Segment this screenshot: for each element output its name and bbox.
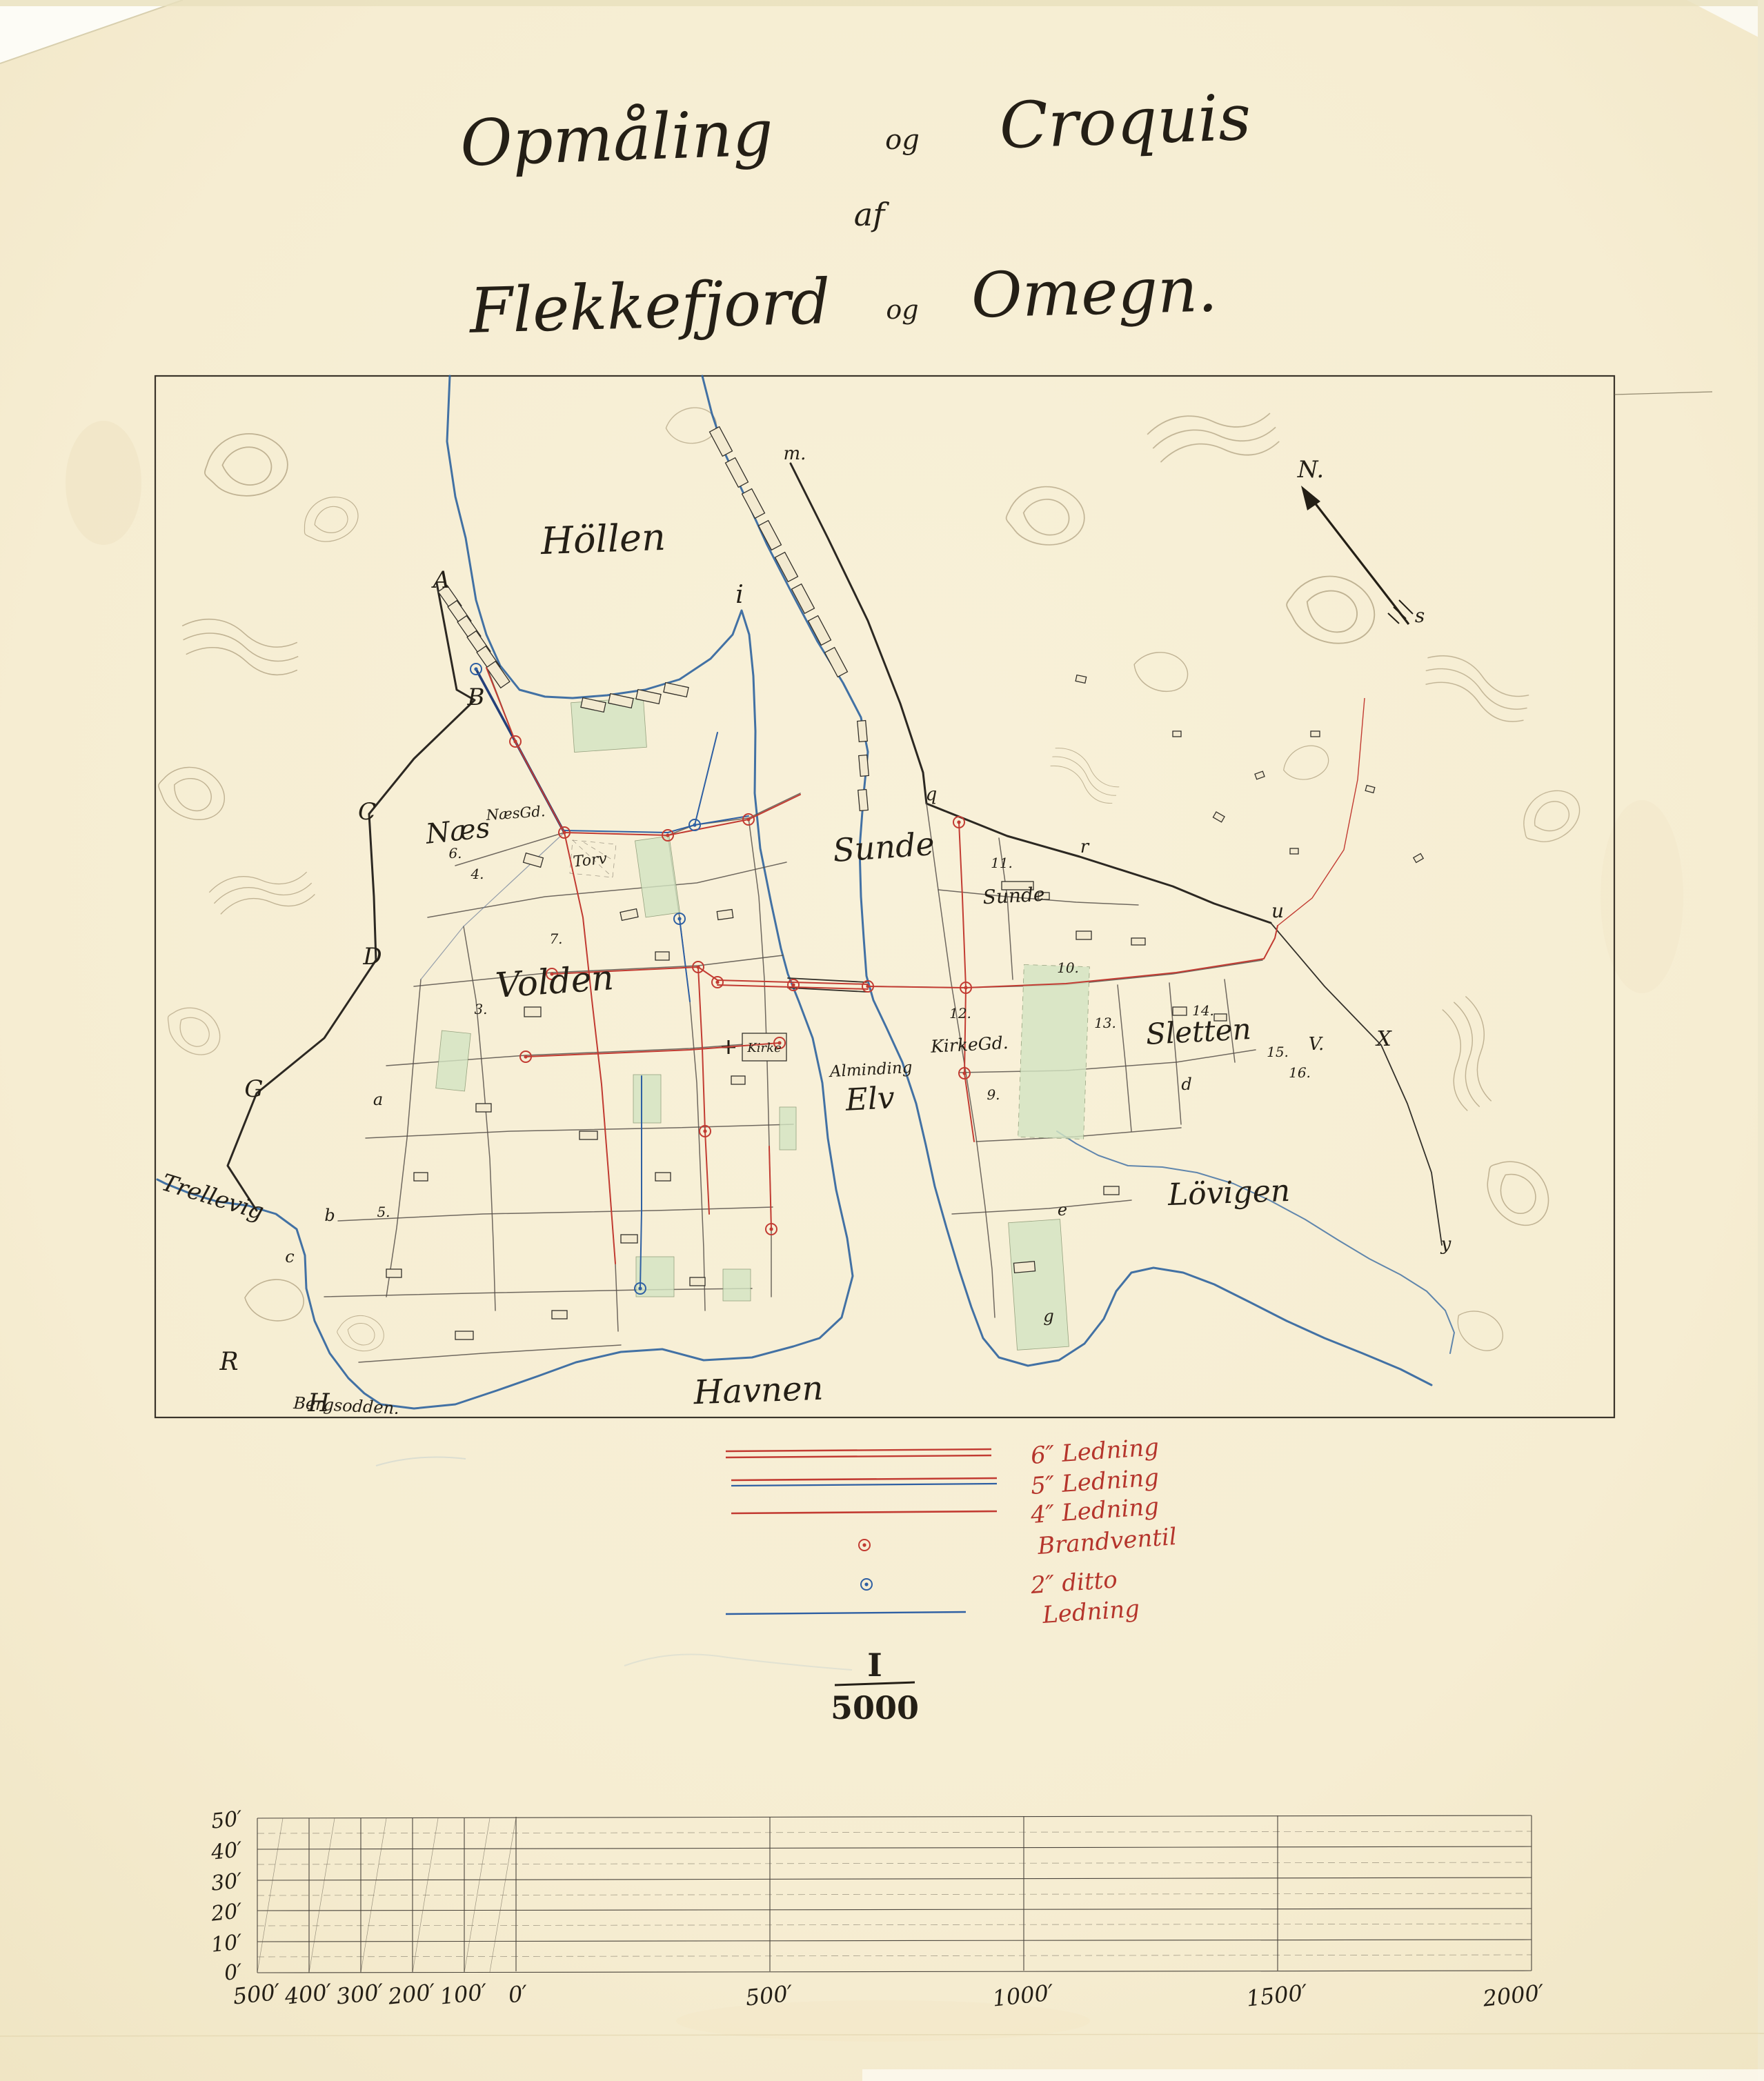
- paper-background: [0, 0, 1764, 2081]
- number-10: 10.: [1057, 959, 1079, 976]
- point-i: i: [735, 581, 744, 609]
- point-V: V.: [1309, 1034, 1325, 1055]
- place-label-kirkegaard: KirkeGd.: [929, 1033, 1009, 1057]
- point-m: m.: [784, 444, 806, 464]
- place-label-sunde-district: Sunde: [831, 825, 935, 869]
- point-y: y: [1440, 1234, 1451, 1255]
- point-D: D: [362, 943, 381, 970]
- lot-d: d: [1181, 1075, 1191, 1094]
- lot-e: e: [1058, 1200, 1067, 1219]
- y-tick-10: 10′: [210, 1930, 244, 1958]
- place-label-lovigen: Lövigen: [1167, 1173, 1291, 1213]
- title-word-opmaling: Opmåling: [459, 96, 774, 181]
- number-12: 12.: [949, 1005, 971, 1022]
- number-7: 7.: [549, 930, 562, 947]
- place-label-volden: Volden: [494, 957, 615, 1006]
- point-C: C: [358, 798, 376, 826]
- place-label-elv: Elv: [844, 1080, 895, 1118]
- point-B: B: [467, 684, 485, 711]
- south-label: s: [1415, 604, 1425, 627]
- number-16: 16.: [1289, 1064, 1311, 1081]
- x-tick-left-200: 200′: [386, 1979, 437, 2010]
- place-label-torv: Torv: [573, 850, 608, 870]
- point-A: A: [431, 566, 450, 594]
- lot-b: b: [324, 1206, 335, 1225]
- place-label-hollen: Höllen: [539, 515, 666, 563]
- number-14: 14.: [1192, 1002, 1214, 1019]
- point-R: R: [219, 1348, 238, 1376]
- y-tick-40: 40′: [209, 1838, 244, 1865]
- title-word-af: af: [854, 196, 889, 233]
- number-6: 6.: [448, 845, 462, 862]
- number-13: 13.: [1094, 1015, 1116, 1031]
- y-tick-50: 50′: [210, 1806, 244, 1834]
- scale-ratio-numerator: I: [867, 1646, 882, 1684]
- cemetery-kirkegaard-area: [1018, 964, 1090, 1139]
- title-word-croquis: Croquis: [998, 81, 1252, 163]
- number-5: 5.: [377, 1204, 390, 1220]
- number-9: 9.: [987, 1086, 1000, 1103]
- number-11: 11.: [991, 855, 1013, 871]
- number-15: 15.: [1267, 1044, 1289, 1060]
- x-tick-left-500: 500′: [232, 1979, 282, 2010]
- y-tick-20: 20′: [209, 1899, 244, 1926]
- point-r: r: [1080, 837, 1090, 857]
- title-conj-og-1: og: [885, 124, 920, 156]
- lot-c: c: [285, 1247, 294, 1266]
- lot-a: a: [373, 1090, 383, 1109]
- point-G: G: [244, 1075, 263, 1103]
- x-tick-left-0: 0′: [507, 1980, 529, 2009]
- title-word-omegn: Omegn.: [971, 253, 1218, 332]
- place-label-sunde-farm: Sunde: [982, 883, 1045, 909]
- point-u: u: [1271, 899, 1284, 922]
- place-label-havnen: Havnen: [693, 1369, 824, 1413]
- x-tick-left-300: 300′: [335, 1979, 386, 2010]
- y-tick-0: 0′: [223, 1960, 244, 1986]
- point-X: X: [1375, 1027, 1392, 1051]
- title-word-flekkefjord: Flekkefjord: [467, 266, 831, 348]
- scanned-map-sheet: Opmåling og Croquis af Flekkefjord og Om…: [0, 0, 1764, 2081]
- number-3: 3.: [474, 1001, 487, 1017]
- lot-g: g: [1043, 1306, 1053, 1326]
- x-tick-right-500: 500′: [744, 1980, 795, 2011]
- point-q: q: [926, 784, 938, 805]
- x-tick-left-100: 100′: [439, 1979, 489, 2010]
- x-tick-left-400: 400′: [283, 1979, 334, 2010]
- y-tick-30: 30′: [210, 1869, 244, 1896]
- profile-scale-left-labels: 500′ 400′ 300′ 200′ 100′ 0′: [232, 1979, 529, 2010]
- number-4: 4.: [470, 866, 484, 882]
- title-conj-og-2: og: [886, 295, 918, 325]
- north-label: N.: [1297, 456, 1324, 484]
- scale-ratio-denominator: 5000: [831, 1689, 919, 1726]
- place-label-kirke: Kirke: [746, 1041, 781, 1055]
- point-H: H: [307, 1389, 330, 1417]
